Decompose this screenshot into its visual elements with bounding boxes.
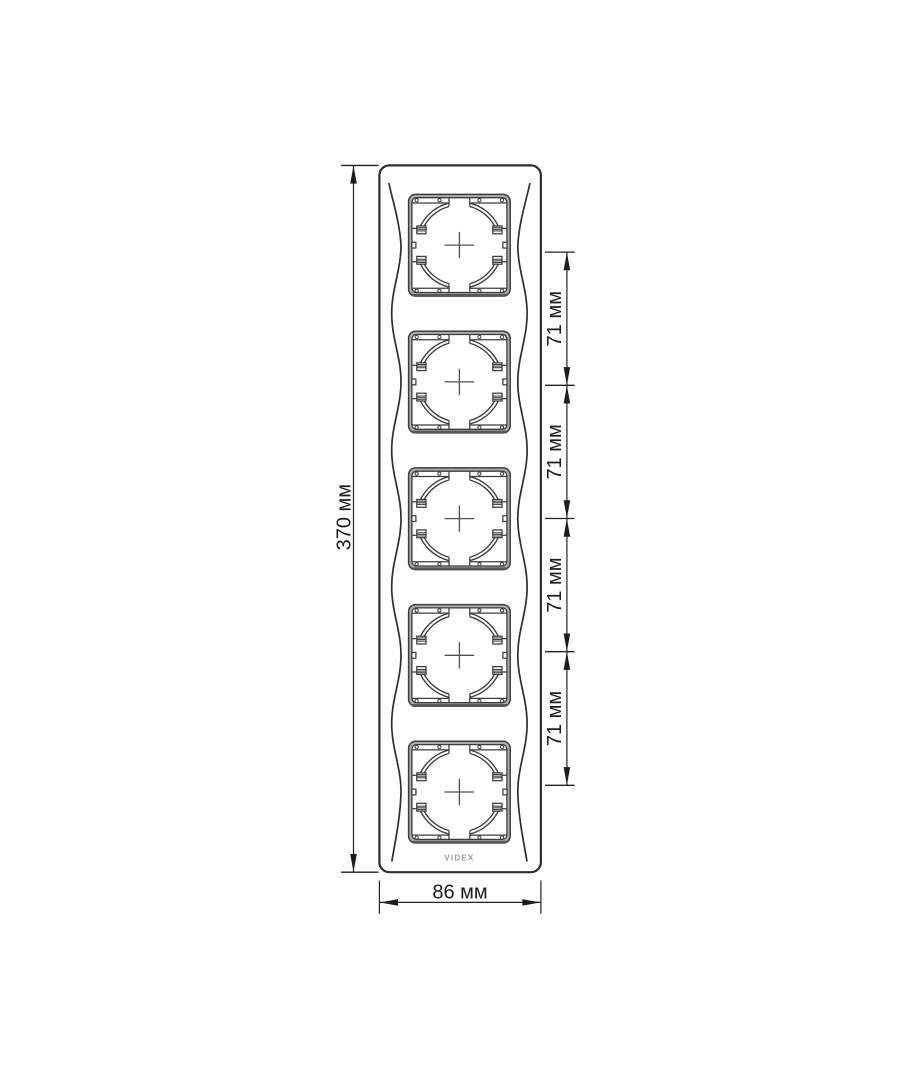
svg-text:VIDEX: VIDEX (444, 854, 474, 863)
svg-text:71 мм: 71 мм (544, 557, 566, 612)
svg-text:71 мм: 71 мм (544, 691, 566, 746)
svg-text:370 мм: 370 мм (334, 484, 356, 550)
svg-text:71 мм: 71 мм (544, 291, 566, 346)
svg-text:71 мм: 71 мм (544, 424, 566, 479)
svg-text:86 мм: 86 мм (432, 881, 487, 903)
